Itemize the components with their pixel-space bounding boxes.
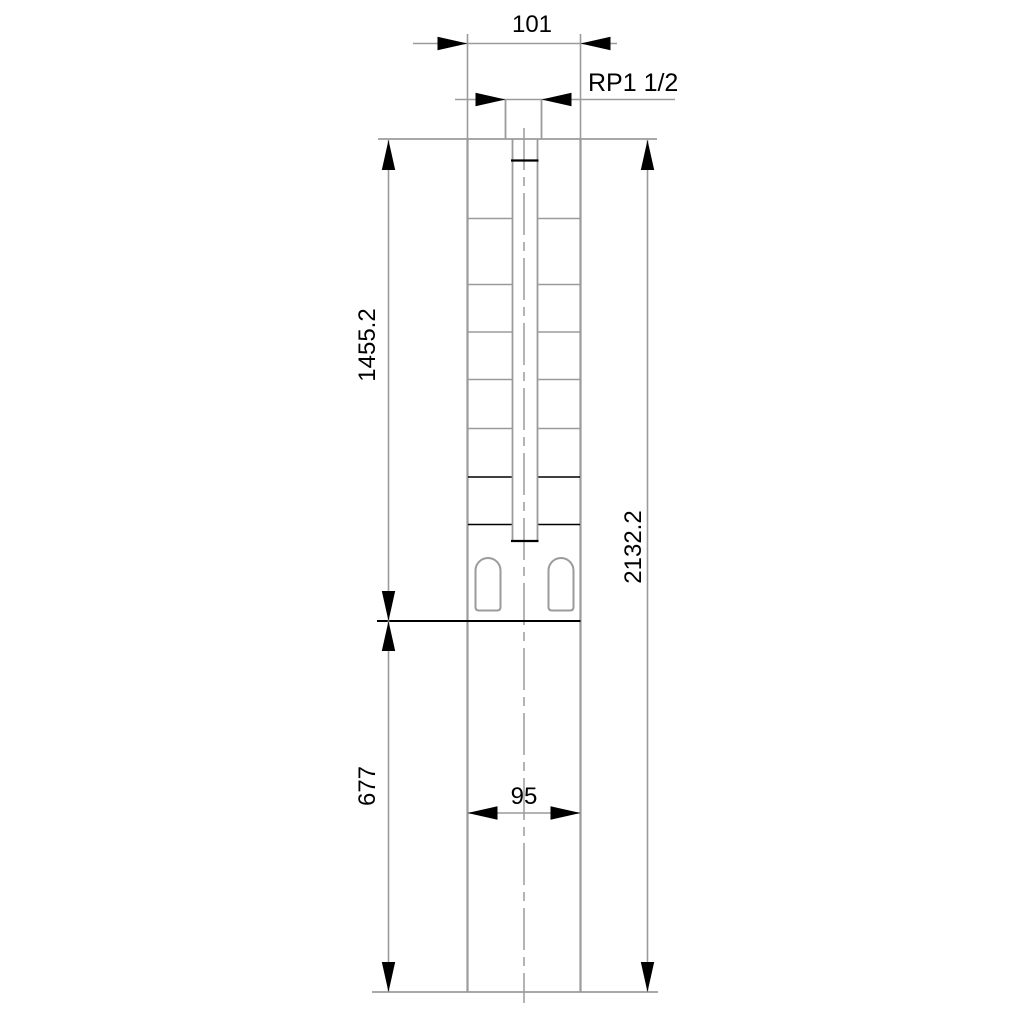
arrowhead-up-icon xyxy=(641,140,654,170)
arrowhead-right-icon xyxy=(476,93,506,106)
dim-label-total-length: 2132.2 xyxy=(620,510,647,583)
dim-label-motor-length: 677 xyxy=(354,766,381,806)
drawing-canvas: 101 RP1 1/2 1455.2 677 2132.2 95 xyxy=(0,0,1024,1024)
pump-outline-drawing: 101 RP1 1/2 1455.2 677 2132.2 95 xyxy=(0,0,1024,1024)
dim-label-thread: RP1 1/2 xyxy=(588,69,678,97)
dimension-left-lengths: 1455.2 677 xyxy=(354,140,395,992)
arrowhead-up-icon xyxy=(382,621,395,651)
pump-body xyxy=(378,100,657,993)
dimension-top-width: 101 xyxy=(413,11,617,139)
arrowhead-right-icon xyxy=(551,806,581,819)
arrowhead-left-icon xyxy=(581,37,611,50)
inlet-slot-right xyxy=(549,558,574,611)
inlet-slot-left xyxy=(476,558,501,611)
dim-label-pump-length: 1455.2 xyxy=(354,308,381,381)
arrowhead-up-icon xyxy=(382,140,395,170)
arrowhead-down-icon xyxy=(382,962,395,992)
arrowhead-down-icon xyxy=(641,962,654,992)
dim-label-motor-width: 95 xyxy=(511,783,538,810)
arrowhead-left-icon xyxy=(542,93,572,106)
arrowhead-down-icon xyxy=(382,591,395,621)
dimension-total-length: 2132.2 xyxy=(620,140,654,992)
arrowhead-right-icon xyxy=(438,37,468,50)
arrowhead-left-icon xyxy=(468,806,498,819)
dim-label-top-width: 101 xyxy=(512,11,552,38)
dimension-thread-connection: RP1 1/2 xyxy=(455,69,678,106)
